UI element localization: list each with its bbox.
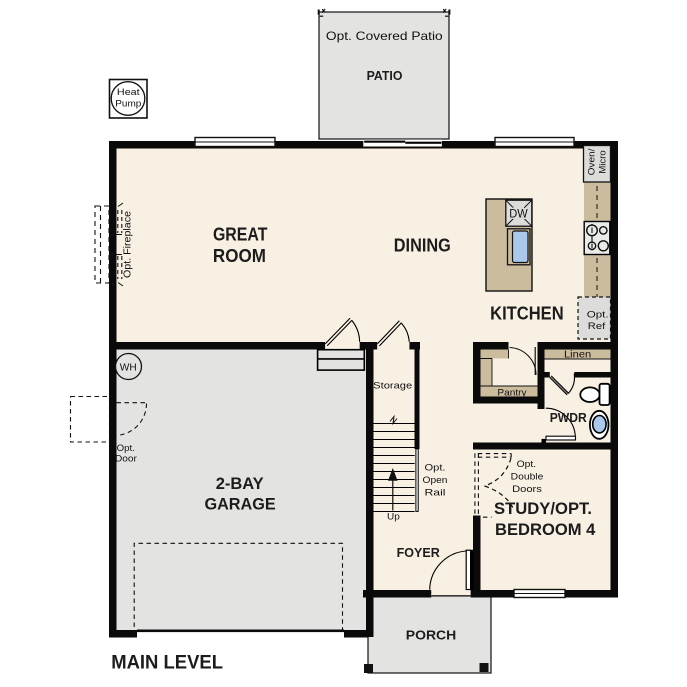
svg-text:Pantry: Pantry	[497, 387, 526, 398]
svg-text:PORCH: PORCH	[406, 628, 457, 643]
svg-text:STUDY/OPT.: STUDY/OPT.	[494, 500, 592, 518]
svg-text:2-BAY: 2-BAY	[216, 474, 265, 493]
svg-text:MAIN LEVEL: MAIN LEVEL	[111, 651, 223, 673]
svg-text:Linen: Linen	[564, 350, 591, 361]
svg-text:DW: DW	[509, 209, 528, 221]
svg-text:DINING: DINING	[394, 236, 451, 256]
svg-text:PATIO: PATIO	[367, 68, 403, 83]
svg-text:Heat: Heat	[117, 87, 140, 98]
svg-text:Double: Double	[511, 472, 544, 483]
svg-text:Opt.: Opt.	[517, 459, 537, 470]
svg-text:Opt.: Opt.	[425, 463, 446, 474]
svg-text:Rail: Rail	[425, 488, 446, 499]
svg-text:Up: Up	[387, 512, 400, 523]
svg-text:Doors: Doors	[512, 484, 542, 495]
svg-text:Micro: Micro	[598, 150, 609, 173]
svg-text:FOYER: FOYER	[397, 545, 441, 560]
svg-text:WH: WH	[120, 361, 137, 373]
svg-text:Storage: Storage	[373, 381, 412, 392]
svg-text:Pump: Pump	[115, 99, 141, 110]
svg-text:GREAT: GREAT	[213, 224, 268, 244]
svg-text:Ref: Ref	[588, 321, 606, 332]
svg-text:Oven/: Oven/	[587, 148, 598, 175]
svg-text:Opt.: Opt.	[587, 310, 609, 321]
svg-text:PWDR: PWDR	[550, 410, 588, 425]
svg-text:KITCHEN: KITCHEN	[490, 304, 564, 324]
svg-text:Opt. Fireplace: Opt. Fireplace	[123, 211, 134, 278]
svg-text:Open: Open	[423, 475, 448, 486]
svg-text:GARAGE: GARAGE	[204, 494, 275, 513]
svg-text:Door: Door	[115, 454, 137, 465]
svg-text:ROOM: ROOM	[213, 246, 266, 266]
svg-text:Opt.: Opt.	[117, 443, 135, 454]
svg-text:Opt. Covered Patio: Opt. Covered Patio	[326, 29, 443, 43]
svg-text:BEDROOM 4: BEDROOM 4	[495, 521, 596, 539]
